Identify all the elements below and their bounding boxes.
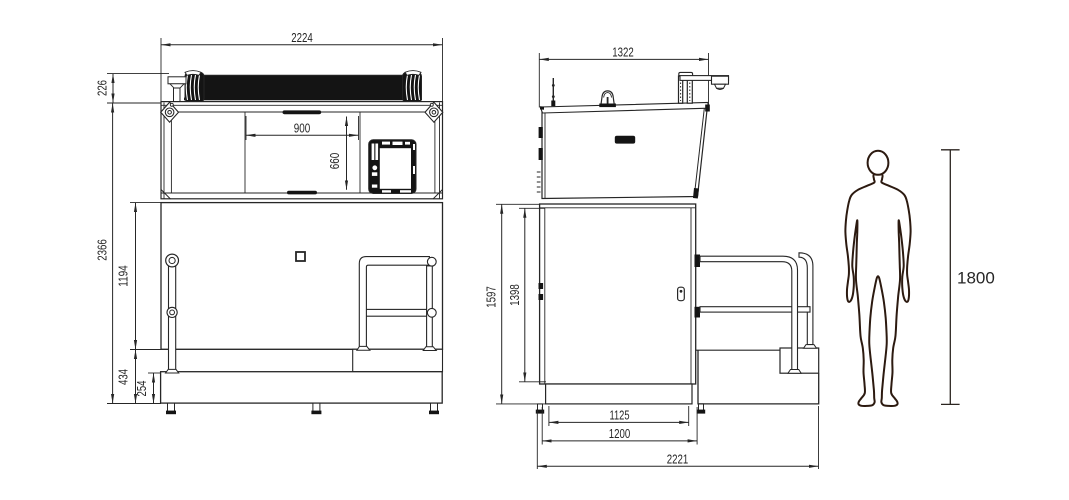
svg-text:254: 254 [134,381,149,397]
svg-text:1597: 1597 [484,286,499,308]
svg-text:900: 900 [294,121,311,136]
svg-text:1322: 1322 [612,45,634,60]
svg-text:660: 660 [327,153,342,170]
svg-text:1194: 1194 [115,265,130,287]
svg-text:434: 434 [115,369,130,385]
svg-text:226: 226 [95,80,110,96]
svg-text:2221: 2221 [667,452,689,467]
svg-text:2366: 2366 [94,239,109,261]
svg-text:1398: 1398 [507,284,522,306]
svg-text:1200: 1200 [609,426,631,441]
svg-text:2224: 2224 [291,30,313,45]
svg-text:1800: 1800 [957,269,995,288]
svg-text:1125: 1125 [610,408,630,423]
